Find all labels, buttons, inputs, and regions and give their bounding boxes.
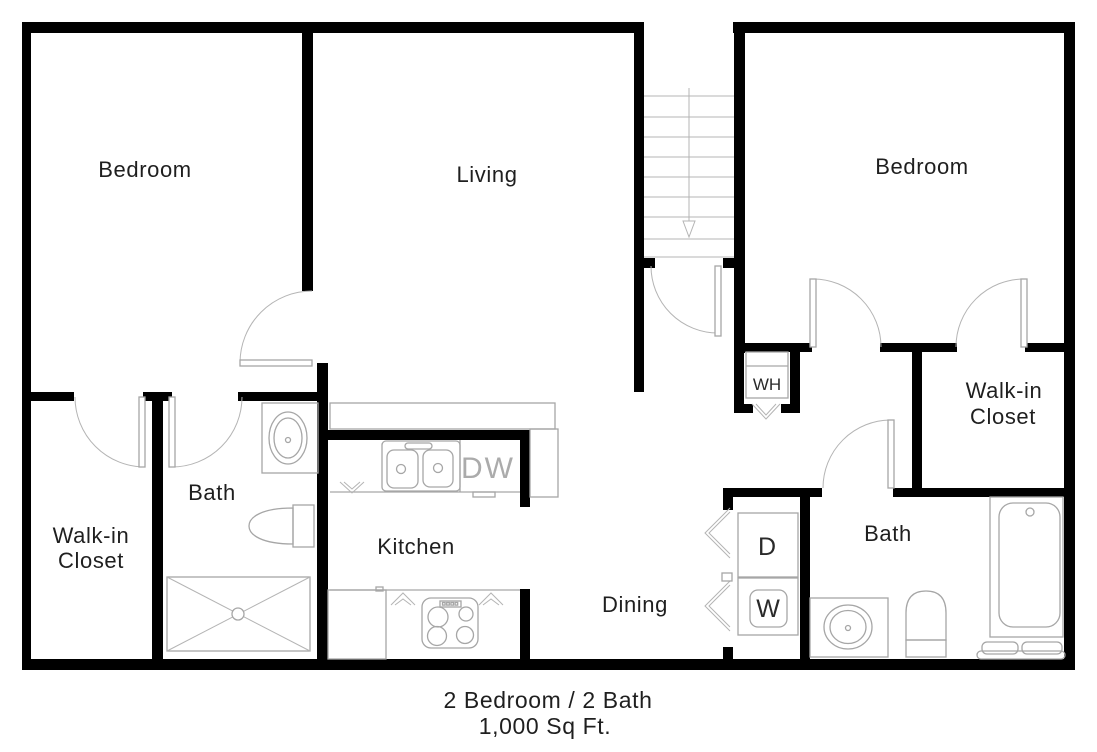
- tub-apron: [977, 651, 1065, 659]
- wall-segment: [723, 488, 822, 497]
- bath-right-fixtures: [810, 497, 1065, 659]
- wall-segment: [1064, 33, 1075, 659]
- wall-segment: [723, 497, 733, 510]
- room-label-walkin-left-line2: Closet: [58, 548, 124, 573]
- room-label-bedroom-right: Bedroom: [875, 154, 968, 179]
- wall-segment: [317, 430, 530, 440]
- refrigerator-icon: [328, 590, 386, 659]
- drain-icon: [397, 465, 406, 474]
- wall-segment: [302, 33, 313, 291]
- door-arc: [172, 397, 242, 467]
- shower-drain-icon: [232, 608, 244, 620]
- stove-knob: [451, 603, 454, 606]
- burner-icon: [428, 607, 448, 627]
- sink-basin-right: [423, 450, 453, 487]
- wall-segment: [31, 392, 74, 401]
- wall-segment: [634, 33, 644, 392]
- room-label-walkin-right-line2: Closet: [970, 404, 1036, 429]
- door-leaf: [888, 420, 894, 488]
- wall-segment: [22, 659, 1075, 670]
- burner-icon: [428, 627, 447, 646]
- faucet-icon: [405, 443, 432, 449]
- door-arc: [75, 397, 145, 467]
- room-label-walkin-left-line1: Walk-in: [53, 523, 130, 548]
- toilet-icon: [906, 591, 946, 640]
- interior-walls: [31, 33, 1064, 659]
- breakfast-bar-counter: [330, 403, 555, 429]
- room-labels: Bedroom Living Bedroom Walk-in Closet Ba…: [53, 154, 1043, 617]
- caption-line2: 1,000 Sq Ft.: [479, 713, 612, 739]
- bath-left-fixtures: [167, 403, 318, 651]
- room-label-walkin-right-line1: Walk-in: [966, 378, 1043, 403]
- room-label-living: Living: [456, 162, 517, 187]
- dishwasher-label: DW: [461, 452, 515, 485]
- door-arc: [956, 279, 1024, 347]
- toilet-tank: [293, 505, 314, 547]
- wall-segment: [152, 401, 163, 659]
- washer-label: W: [756, 595, 780, 623]
- wall-segment: [22, 22, 644, 33]
- room-label-bath-left: Bath: [188, 480, 236, 505]
- room-label-bath-right: Bath: [864, 521, 912, 546]
- dryer-label: D: [758, 533, 776, 561]
- counter-return: [530, 429, 558, 497]
- bathroom-sink-icon: [824, 605, 872, 649]
- vanity-counter: [810, 598, 888, 657]
- door-leaf: [1021, 279, 1027, 347]
- doors: [75, 266, 1027, 631]
- wall-segment: [22, 33, 31, 659]
- wall-segment: [1025, 343, 1064, 352]
- refrigerator-handle: [376, 587, 383, 591]
- bifold-door: [756, 404, 776, 415]
- counter-corner-mark: [395, 599, 411, 605]
- toilet-icon: [249, 508, 293, 544]
- staircase: [644, 88, 734, 257]
- wall-segment: [781, 404, 800, 413]
- wall-segment: [734, 352, 744, 405]
- door-leaf: [139, 397, 145, 467]
- counter-corner-mark: [483, 599, 499, 605]
- caption: 2 Bedroom / 2 Bath 1,000 Sq Ft.: [444, 687, 653, 739]
- wall-segment: [734, 404, 753, 413]
- wall-segment: [800, 497, 810, 659]
- wall-segment: [790, 352, 800, 405]
- wall-segment: [880, 343, 957, 352]
- wall-segment: [912, 352, 922, 488]
- floor-plan: D W WH Bedroom Living Bedroom Walk-in Cl…: [0, 0, 1097, 747]
- water-heater: WH: [746, 352, 788, 398]
- caption-line1: 2 Bedroom / 2 Bath: [444, 687, 653, 713]
- wall-segment: [520, 589, 530, 659]
- drain-icon: [846, 626, 851, 631]
- floor-plan-page: D W WH Bedroom Living Bedroom Walk-in Cl…: [0, 0, 1097, 747]
- wall-segment: [734, 343, 812, 352]
- tub-step: [982, 642, 1018, 654]
- burner-icon: [459, 607, 473, 621]
- wall-segment: [143, 392, 172, 401]
- wall-segment: [893, 488, 1064, 497]
- stove-knob: [455, 603, 458, 606]
- bifold-door: [752, 404, 780, 419]
- wall-segment: [733, 22, 1075, 33]
- room-label-kitchen: Kitchen: [377, 534, 455, 559]
- bathtub-icon: [999, 503, 1060, 627]
- room-label-dining: Dining: [602, 592, 668, 617]
- door-leaf: [240, 360, 312, 366]
- burner-icon: [457, 627, 474, 644]
- dishwasher-handle: [473, 492, 495, 497]
- tub-surround: [990, 497, 1063, 637]
- water-heater-label: WH: [753, 375, 781, 394]
- drain-icon: [1026, 508, 1034, 516]
- laundry-fixtures: D W: [738, 513, 798, 635]
- stair-arrow-icon: [683, 221, 695, 237]
- room-label-bedroom-left: Bedroom: [98, 157, 191, 182]
- door-arc: [651, 266, 718, 333]
- toilet-tank: [906, 640, 946, 657]
- drain-icon: [286, 438, 291, 443]
- sink-basin-left: [387, 450, 418, 488]
- wall-segment: [723, 647, 733, 659]
- door-arc: [813, 279, 881, 347]
- wall-segment: [238, 392, 323, 401]
- wall-segment: [644, 258, 655, 268]
- wall-segment: [520, 430, 530, 507]
- wall-segment: [723, 258, 734, 268]
- tub-step: [1022, 642, 1062, 654]
- stove-knob: [443, 603, 446, 606]
- bathroom-sink-bowl: [830, 611, 866, 644]
- door-leaf: [810, 279, 816, 347]
- drain-icon: [434, 464, 443, 473]
- door-leaf: [169, 397, 175, 467]
- door-arc: [240, 291, 312, 363]
- door-arc: [823, 420, 891, 488]
- door-leaf: [715, 266, 721, 336]
- wall-segment: [734, 33, 745, 353]
- stove-knob: [447, 603, 450, 606]
- bifold-hinge-block: [722, 573, 732, 581]
